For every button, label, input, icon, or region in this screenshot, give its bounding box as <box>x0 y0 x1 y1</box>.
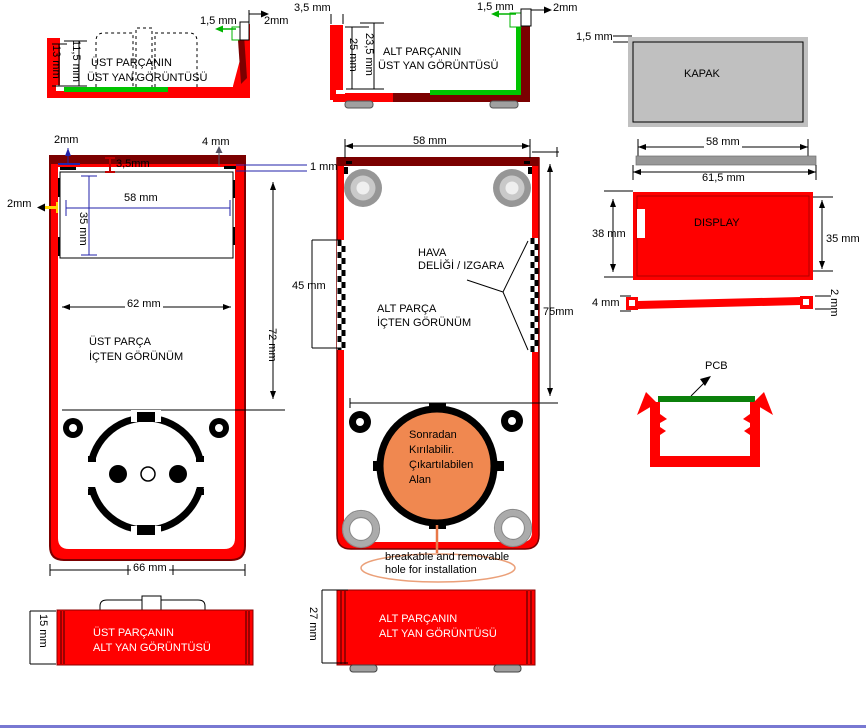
dim-label: 2mm <box>553 2 577 15</box>
dim-label: 75mm <box>543 306 574 319</box>
dim-label: 15 mm <box>36 614 49 648</box>
dim-label: 2mm <box>7 198 31 211</box>
cover-edge-bar <box>636 156 816 165</box>
dim-label: 62 mm <box>125 298 163 311</box>
dim-label: 35 mm <box>826 233 860 246</box>
dim-label: 1,5 mm <box>576 31 613 44</box>
dim-label: 58 mm <box>704 136 742 149</box>
dim-label: 4 mm <box>592 297 620 310</box>
yellow-arrow <box>37 204 45 212</box>
foot <box>490 101 518 108</box>
breakout-label: Sonradan <box>409 429 457 442</box>
dim-label: 13 mm <box>49 45 62 79</box>
dim-label: 58 mm <box>124 192 158 205</box>
display-slot <box>637 209 645 238</box>
cover-view-drawing <box>613 36 816 180</box>
breakout-label: Kırılabilir. <box>409 444 454 457</box>
view-title: ALT PARÇANIN <box>379 613 457 626</box>
foot <box>345 101 373 108</box>
dim-label: 58 mm <box>413 135 447 148</box>
display-panel <box>633 192 813 280</box>
view-title: DISPLAY <box>694 217 740 230</box>
dim-label: 25 mm <box>346 38 359 72</box>
view-title: ÜST PARÇANIN <box>93 627 174 640</box>
foot <box>350 665 377 672</box>
view-title: İÇTEN GÖRÜNÜM <box>377 317 471 330</box>
pin-hole <box>169 465 187 483</box>
view-title: ÜST PARÇA <box>89 336 151 349</box>
pcb-label: PCB <box>705 360 728 373</box>
earth-clip <box>137 412 155 422</box>
dim-label: 1,5 mm <box>477 1 514 14</box>
view-title: ÜST YAN GÖRÜNTÜSÜ <box>378 60 498 73</box>
pcb-board <box>658 396 755 402</box>
dim-label: 38 mm <box>592 228 626 241</box>
right-wall <box>521 25 530 100</box>
dim-label: 72 mm <box>265 328 278 362</box>
dim-label: 11,5 mm <box>69 40 82 82</box>
note-label: breakable and removable <box>385 551 509 564</box>
lower-part-inner-view-drawing <box>312 139 559 582</box>
cable-tab <box>142 596 161 611</box>
dim-label: 23,5 mm <box>362 33 375 76</box>
display-view-drawing <box>604 191 833 311</box>
dim-label: 3,5 mm <box>294 2 331 15</box>
vent-label: HAVA <box>418 247 446 260</box>
seal-strip <box>64 87 168 92</box>
dim-label: 1 mm <box>310 161 338 174</box>
dim-label: 2mm <box>264 15 288 28</box>
dim-label: 3,5mm <box>116 158 150 171</box>
technical-drawing-canvas: 1,5 mm 2mm 13 mm 11,5 mm ÜST PARÇANIN ÜS… <box>0 0 866 728</box>
left-wall <box>330 25 343 100</box>
dim-label: 45 mm <box>292 280 326 293</box>
pcb-cross-section-drawing <box>637 376 773 467</box>
center-hole <box>141 467 155 481</box>
view-title: ALT PARÇA <box>377 303 436 316</box>
pcb-arrow <box>700 376 711 386</box>
dim-label: 1,5 mm <box>200 15 237 28</box>
view-title: ÜST YAN GÖRÜNTÜSÜ <box>87 72 207 85</box>
view-title: KAPAK <box>684 68 720 81</box>
view-title: ALT YAN GÖRÜNTÜSÜ <box>379 628 497 641</box>
note-label: hole for installation <box>385 564 477 577</box>
foot <box>494 665 521 672</box>
dim-label: 27 mm <box>306 607 319 641</box>
breakout-label: Çıkartılabilen <box>409 459 473 472</box>
dim-label: 4 mm <box>202 136 230 149</box>
view-title: ALT YAN GÖRÜNTÜSÜ <box>93 642 211 655</box>
dim-label: 66 mm <box>131 562 169 575</box>
seal-strip <box>430 90 522 95</box>
dim-label: 2mm <box>54 134 78 147</box>
dim-label: 61,5 mm <box>702 172 745 185</box>
view-title: ALT PARÇANIN <box>383 46 461 59</box>
thin-panel-bar <box>638 297 800 309</box>
earth-clip <box>137 525 155 535</box>
vent-label: DELİĞİ / IZGARA <box>418 260 504 273</box>
dim-label: 35 mm <box>76 212 89 246</box>
dim-label: 2 mm <box>827 289 840 317</box>
view-title: İÇTEN GÖRÜNÜM <box>89 351 183 364</box>
pin-hole <box>109 465 127 483</box>
breakout-label: Alan <box>409 474 431 487</box>
black-arrow <box>544 7 552 14</box>
view-title: ÜST PARÇANIN <box>91 57 172 70</box>
cover-plate <box>628 37 808 127</box>
